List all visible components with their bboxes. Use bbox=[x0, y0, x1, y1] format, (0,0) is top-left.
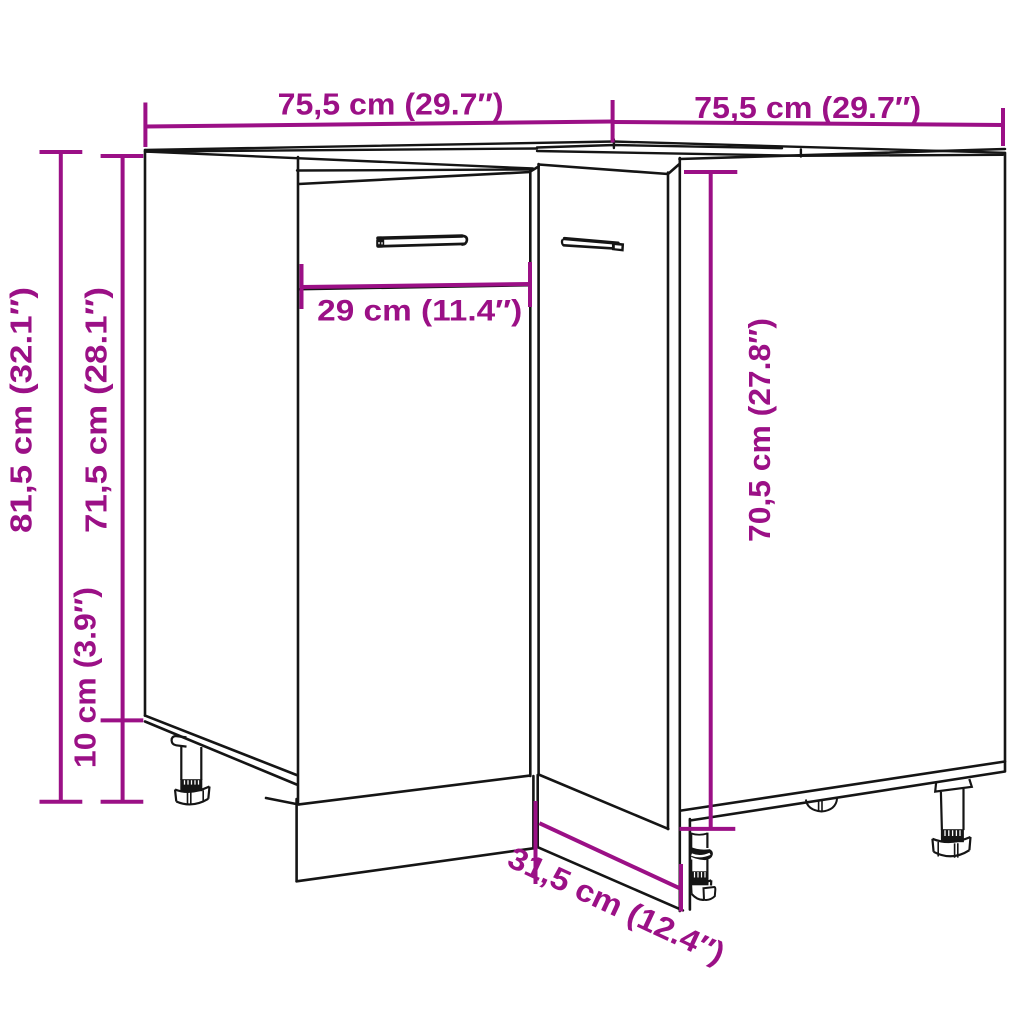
svg-text:75,5 cm (29.7″): 75,5 cm (29.7″) bbox=[278, 87, 504, 122]
svg-text:29 cm (11.4″): 29 cm (11.4″) bbox=[317, 295, 522, 328]
svg-text:70,5 cm (27.8″): 70,5 cm (27.8″) bbox=[742, 318, 777, 542]
svg-text:71,5 cm (28.1″): 71,5 cm (28.1″) bbox=[79, 287, 114, 533]
svg-text:10 cm (3.9″): 10 cm (3.9″) bbox=[68, 587, 103, 768]
svg-text:75,5 cm (29.7″): 75,5 cm (29.7″) bbox=[694, 90, 921, 125]
svg-text:81,5 cm (32.1″): 81,5 cm (32.1″) bbox=[4, 287, 39, 533]
